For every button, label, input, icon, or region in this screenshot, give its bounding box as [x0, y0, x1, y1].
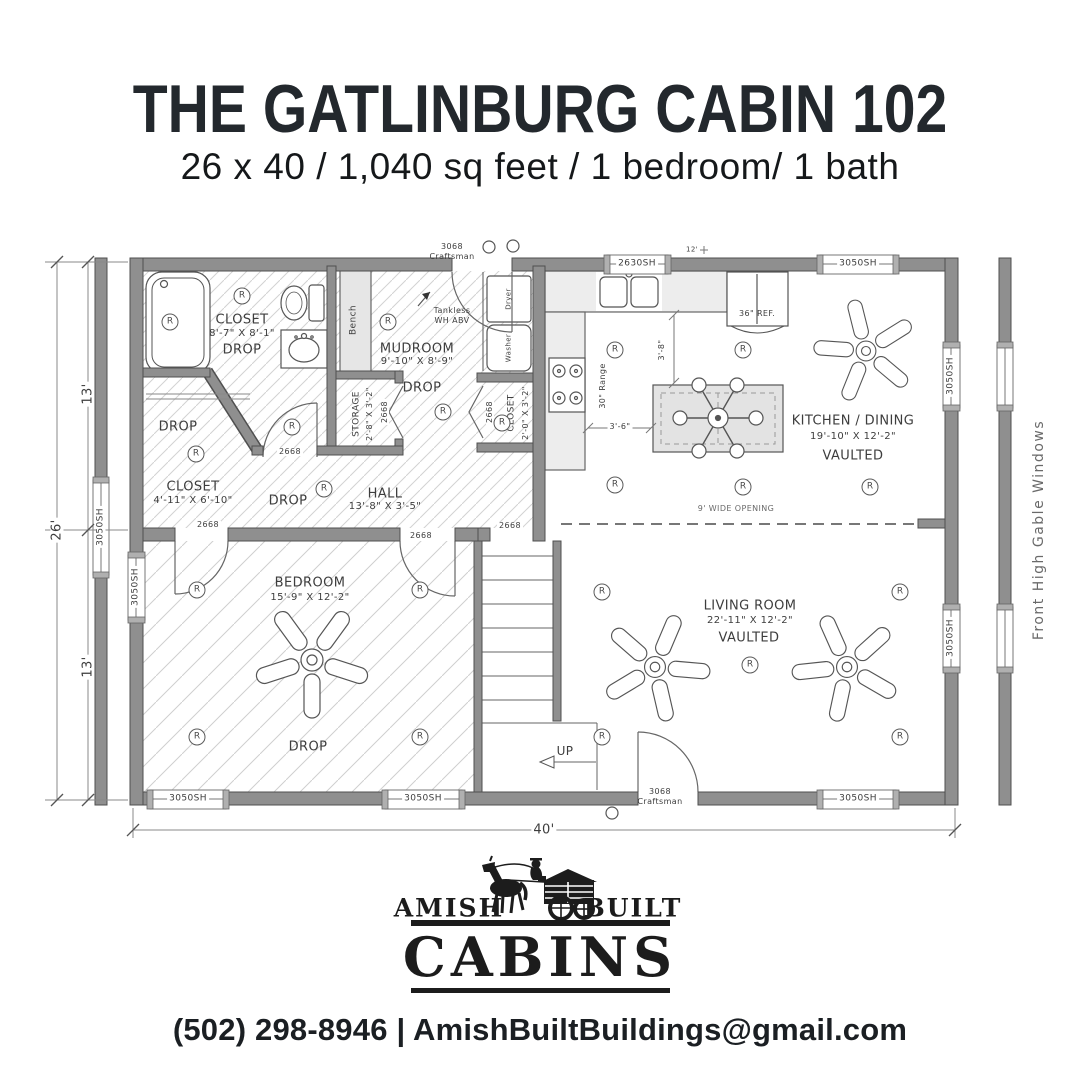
- brand-amish: AMISH: [394, 894, 504, 923]
- door-label-back-size: 3068: [649, 788, 671, 796]
- room-dims-bath: 8'-7" X 8'-1": [209, 329, 275, 339]
- dim-gable-height: 12': [686, 247, 698, 254]
- window-label: 3050SH: [947, 617, 956, 659]
- recessed-light-icon: R: [284, 419, 301, 436]
- recessed-light-icon: R: [607, 342, 624, 359]
- door-label-front-size: 3068: [441, 243, 463, 251]
- ceiling-fan-icon: [604, 613, 711, 722]
- room-dims-bedroom: 15'-9" X 12'-2": [270, 593, 349, 603]
- wide-opening-label: 9' WIDE OPENING: [698, 505, 775, 513]
- dim-half-depth: 13': [82, 381, 95, 406]
- recessed-light-icon: R: [494, 415, 511, 432]
- washer-label: Washer: [506, 334, 513, 362]
- bench-label: Bench: [350, 305, 359, 335]
- back-door-swing: [638, 732, 698, 792]
- door-label-back-style: Craftsman: [637, 798, 682, 806]
- room-dims-kitchen: 19'-10" X 12'-2": [810, 432, 896, 442]
- window-label: 3050SH: [947, 355, 956, 397]
- recessed-light-icon: R: [594, 729, 611, 746]
- room-dims-living: 22'-11" X 12'-2": [707, 616, 793, 626]
- recessed-light-icon: R: [435, 404, 452, 421]
- dim-overall-width: 40': [531, 824, 556, 837]
- door-label-front-style: Craftsman: [429, 253, 474, 261]
- recessed-light-icon: R: [892, 584, 909, 601]
- room-dims-walkin: 4'-11" X 6'-10": [153, 496, 232, 506]
- window-label: 3050SH: [167, 795, 209, 804]
- window-label: 3050SH: [132, 566, 141, 608]
- ceiling-note-walkin: DROP: [159, 421, 198, 434]
- logo-divider: [411, 988, 670, 993]
- ceiling-note-living: VAULTED: [719, 632, 780, 645]
- bathroom-sink-icon: [281, 330, 327, 368]
- recessed-light-icon: R: [412, 729, 429, 746]
- stairs-up-label: UP: [557, 745, 574, 757]
- gable-windows-note: Front High Gable Windows: [1032, 420, 1046, 640]
- recessed-light-icon: R: [607, 477, 624, 494]
- window-label: 3050SH: [402, 795, 444, 804]
- room-label-mudroom: MUDROOM: [380, 343, 454, 356]
- room-label-living: LIVING ROOM: [704, 600, 797, 613]
- window-label: 3050SH: [837, 260, 879, 269]
- door-label-interior: 2668: [381, 399, 389, 425]
- room-label-walkin: CLOSET: [167, 481, 220, 494]
- recessed-light-icon: R: [189, 582, 206, 599]
- flyer: THE GATLINBURG CABIN 102 26 x 40 / 1,040…: [0, 0, 1080, 1080]
- recessed-light-icon: R: [316, 481, 333, 498]
- room-dims-mudroom: 9'-10" X 8'-9": [381, 357, 454, 367]
- recessed-light-icon: R: [189, 729, 206, 746]
- recessed-light-icon: R: [162, 314, 179, 331]
- recessed-light-icon: R: [380, 314, 397, 331]
- window-label: 3050SH: [97, 506, 106, 548]
- door-label-interior: 2668: [277, 448, 303, 456]
- recessed-light-icon: R: [188, 446, 205, 463]
- brand-cabins: CABINS: [403, 925, 677, 989]
- tankless-label-2: WH ABV: [434, 317, 469, 325]
- recessed-light-icon: R: [892, 729, 909, 746]
- up-arrow-icon: [540, 756, 554, 768]
- window-label: 3050SH: [837, 795, 879, 804]
- door-label-interior: 2668: [408, 532, 434, 540]
- room-label-kitchen: KITCHEN / DINING: [792, 415, 915, 428]
- door-label-interior: 2668: [497, 522, 523, 530]
- brand-built: BUILT: [584, 894, 683, 923]
- stairs: [482, 556, 597, 790]
- room-label-bedroom: BEDROOM: [275, 577, 346, 590]
- ceiling-note-mudroom: DROP: [403, 382, 442, 395]
- dim-overall-depth: 26': [51, 517, 64, 542]
- fridge-label: 36" REF.: [739, 310, 775, 318]
- ceiling-note-bedroom: DROP: [289, 741, 328, 754]
- dim-wall-counter: 3'-8": [658, 338, 666, 363]
- recessed-light-icon: R: [735, 479, 752, 496]
- ceiling-note-hall: DROP: [269, 495, 308, 508]
- room-dims-storage: 2'-8" X 3'-2": [366, 387, 374, 441]
- tankless-label-1: Tankless: [434, 307, 471, 315]
- dryer-label: Dryer: [506, 288, 513, 310]
- room-label-hall: HALL: [368, 488, 403, 501]
- contact-info: (502) 298-8946 | AmishBuiltBuildings@gma…: [173, 1012, 907, 1048]
- ceiling-fan-icon: [813, 299, 914, 402]
- recessed-light-icon: R: [594, 584, 611, 601]
- dim-half-depth: 13': [82, 654, 95, 679]
- ceiling-note-kitchen: VAULTED: [823, 450, 884, 463]
- door-label-interior: 2668: [195, 521, 221, 529]
- dim-counter-island: 3'-6": [608, 423, 633, 431]
- range-icon: [549, 358, 585, 412]
- refrigerator-icon: [727, 272, 788, 333]
- range-label: 30" Range: [599, 363, 607, 408]
- room-label-storage: STORAGE: [353, 391, 362, 437]
- height-marker-icon: [700, 246, 708, 254]
- ceiling-fan-icon: [791, 614, 898, 723]
- recessed-light-icon: R: [742, 657, 759, 674]
- room-dims-small-closet: 2'-0" X 3'-2": [522, 386, 530, 440]
- recessed-light-icon: R: [234, 288, 251, 305]
- toilet-icon: [281, 285, 324, 321]
- recessed-light-icon: R: [412, 582, 429, 599]
- recessed-light-icon: R: [735, 342, 752, 359]
- room-dims-hall: 13'-8" X 3'-5": [349, 502, 422, 512]
- room-label-bath: CLOSET: [216, 314, 269, 327]
- ceiling-note-bath: DROP: [223, 344, 262, 357]
- window-label: 2630SH: [616, 260, 658, 269]
- recessed-light-icon: R: [862, 479, 879, 496]
